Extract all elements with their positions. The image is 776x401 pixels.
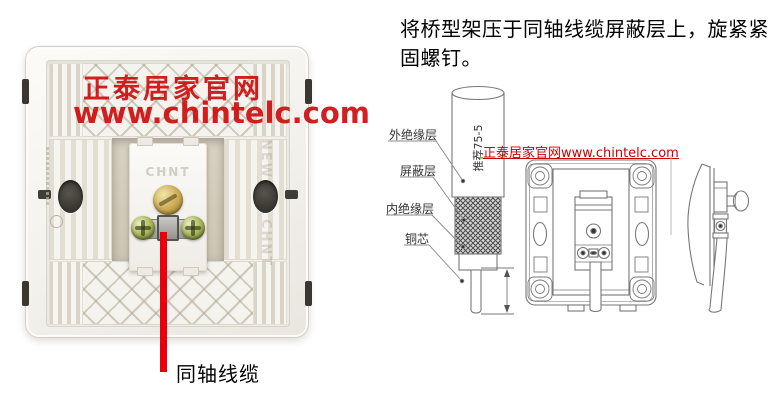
center-screw <box>153 185 183 215</box>
mounting-hole-right <box>253 180 278 213</box>
embossed-chnt-text: CHNT <box>258 219 273 267</box>
coax-cable-label: 同轴线缆 <box>176 358 260 387</box>
module-clip <box>137 137 153 146</box>
socket-sideview-diagram <box>668 150 776 325</box>
module-clip <box>183 267 199 276</box>
mounting-hole-left <box>58 180 83 213</box>
edge-clip <box>305 281 312 306</box>
rib-pattern <box>49 261 83 325</box>
module-clip <box>183 137 199 146</box>
coax-module: CHNT <box>129 143 207 271</box>
embossed-new-text: NEW <box>258 139 273 179</box>
fine-print-vertical <box>46 147 49 205</box>
edge-clip <box>22 281 29 306</box>
rib-pattern <box>253 261 287 325</box>
module-clip <box>137 267 153 276</box>
edge-slot-left <box>38 190 51 199</box>
clamp-screw-right <box>181 216 205 240</box>
label-outer-insulation: 外绝缘层 <box>389 126 437 143</box>
edge-clip <box>22 79 29 104</box>
coax-pointer-arrow <box>160 232 167 372</box>
module-brand-text: CHNT <box>129 165 207 179</box>
label-copper-core: 铜芯 <box>405 230 429 247</box>
edge-slot-right <box>285 190 298 199</box>
label-shield-layer: 屏蔽层 <box>400 162 436 179</box>
wall-plate: NEW CHNT CHNT 正泰居家官网 www.chintelc.com <box>25 46 309 338</box>
instruction-text: 将桥型架压于同轴线缆屏蔽层上，旋紧紧固螺钉。 <box>400 15 774 73</box>
certification-mark <box>50 215 63 228</box>
label-inner-insulation: 内绝缘层 <box>386 200 434 217</box>
socket-back-photo: NEW CHNT CHNT 正泰居家官网 www.chintelc.com <box>25 46 309 338</box>
photo-watermark-line2: www.chintelc.com <box>73 96 370 130</box>
socket-backview-diagram <box>524 158 660 318</box>
install-manual-step: 将桥型架压于同轴线缆屏蔽层上，旋紧紧固螺钉。 NEW CHNT <box>0 0 776 401</box>
clamp-screw-left <box>131 216 155 240</box>
